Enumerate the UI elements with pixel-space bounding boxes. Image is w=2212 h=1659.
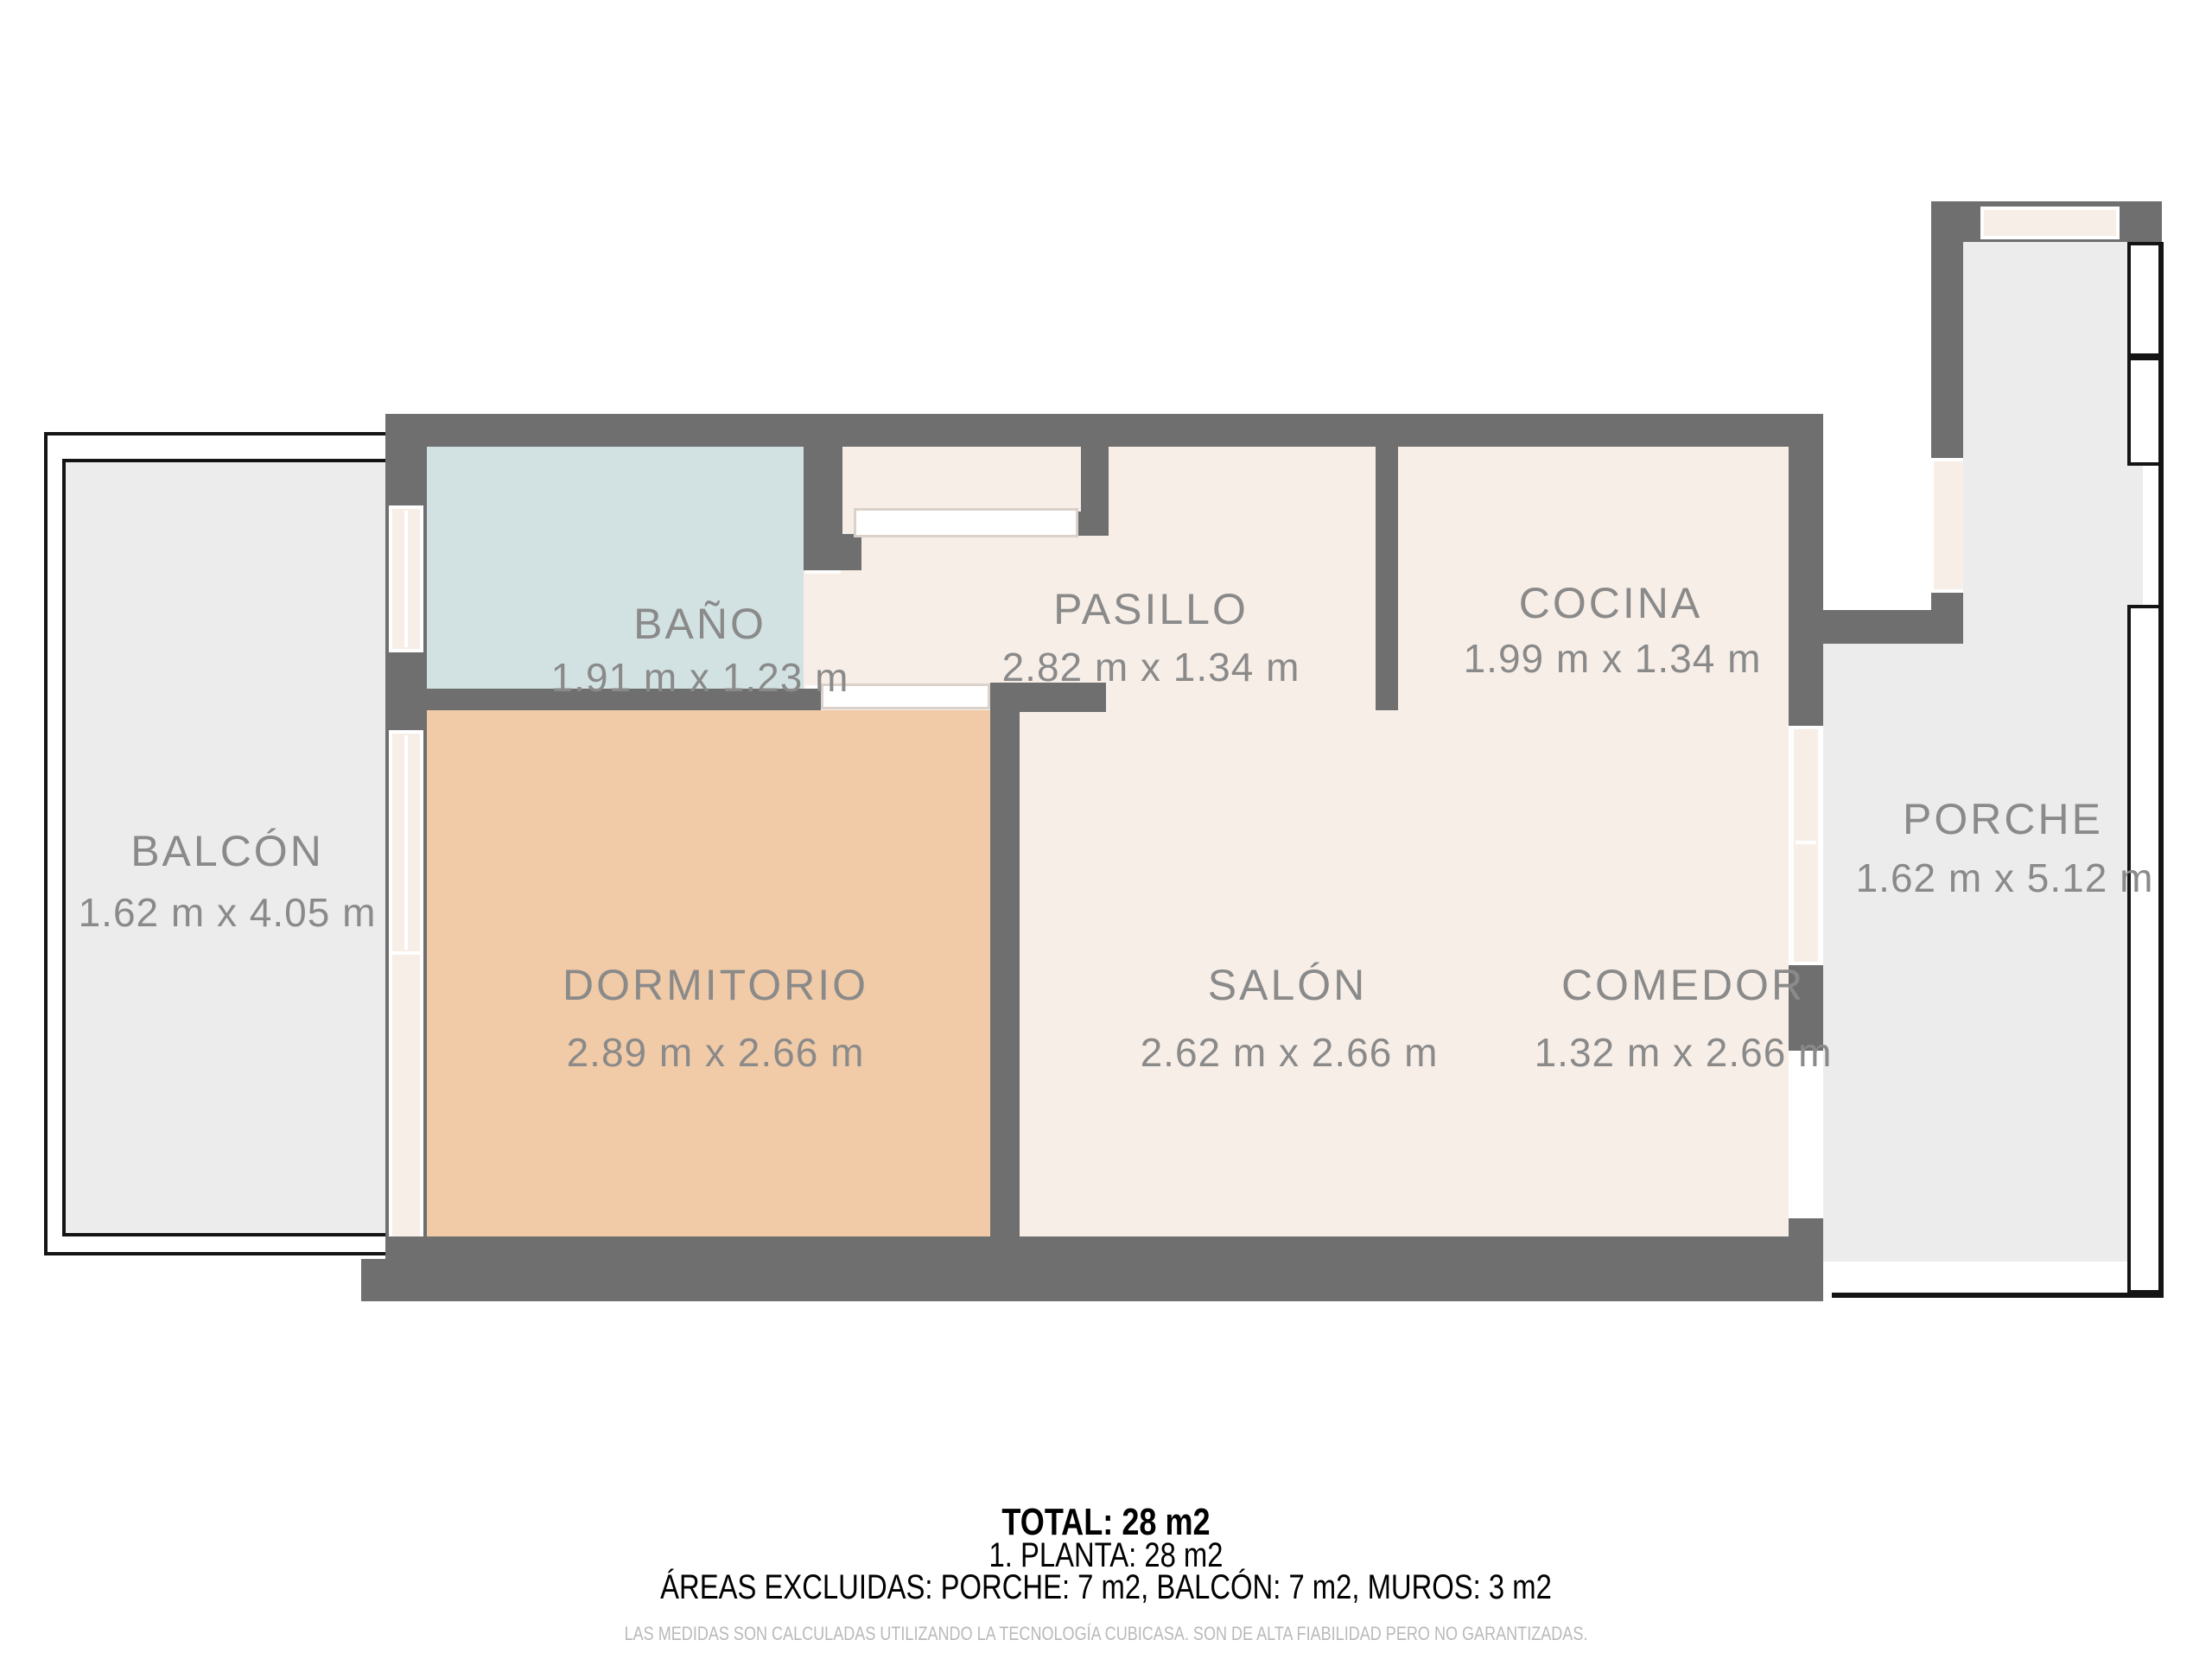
- dims-pasillo: 2.82 m x 1.34 m: [1002, 644, 1300, 690]
- bedroom-livingroom-wall: [990, 683, 1020, 1236]
- porch-left-wall: [1931, 205, 1963, 458]
- right-wall-bottom: [1789, 1218, 1823, 1301]
- bedroom-balcony-door-opening: [389, 955, 423, 1236]
- label-salon: SALÓN: [1208, 960, 1368, 1010]
- label-bano: BAÑO: [633, 599, 766, 649]
- window-divider: [1796, 841, 1816, 844]
- summary-disclaimer: LAS MEDIDAS SON CALCULADAS UTILIZANDO LA…: [199, 1623, 2012, 1645]
- dims-salon: 2.62 m x 2.66 m: [1141, 1029, 1439, 1076]
- dims-bano: 1.91 m x 1.23 m: [551, 654, 849, 701]
- dims-balcon: 1.62 m x 4.05 m: [79, 889, 377, 936]
- label-cocina: COCINA: [1519, 578, 1702, 628]
- bathroom-door-jamb: [842, 534, 861, 570]
- window-mullion: [404, 511, 408, 647]
- bathroom-balcony-window: [389, 505, 423, 652]
- label-comedor: COMEDOR: [1561, 960, 1805, 1010]
- top-wall: [385, 414, 1823, 447]
- label-dormitorio: DORMITORIO: [563, 960, 868, 1010]
- dims-cocina: 1.99 m x 1.34 m: [1464, 635, 1762, 682]
- porch-floor-upper: [1963, 242, 2143, 644]
- porch-top-window: [1980, 207, 2120, 239]
- diningroom-porch-window: [1790, 726, 1821, 965]
- diningroom-porch-door-opening: [1790, 1051, 1821, 1218]
- dims-porche: 1.62 m x 5.12 m: [1856, 855, 2154, 901]
- summary-excluded-areas: ÁREAS EXCLUIDAS: PORCHE: 7 m2, BALCÓN: 7…: [199, 1572, 2012, 1604]
- porch-window-2: [2127, 357, 2162, 466]
- entry-closet-sliding-door: [854, 508, 1078, 537]
- area-summary: TOTAL: 28 m2 1. PLANTA: 28 m2 ÁREAS EXCL…: [0, 1505, 2212, 1645]
- right-wall-top: [1789, 414, 1823, 726]
- bathroom-floor: [427, 447, 804, 689]
- label-pasillo: PASILLO: [1053, 584, 1249, 634]
- bedroom-balcony-window: [389, 730, 423, 955]
- window-mullion: [404, 735, 408, 950]
- porch-window-3: [2127, 605, 2162, 1294]
- summary-floor: 1. PLANTA: 28 m2: [199, 1540, 2012, 1572]
- porch-connector-wall: [1823, 610, 1963, 644]
- porch-left-window: [1934, 458, 1963, 593]
- label-porche: PORCHE: [1903, 794, 2103, 844]
- entry-closet-wall: [1081, 443, 1109, 536]
- porch-window-1: [2127, 242, 2162, 357]
- bottom-wall: [385, 1236, 1823, 1301]
- kitchen-hallway-wall: [1376, 443, 1398, 710]
- dims-comedor: 1.32 m x 2.66 m: [1535, 1029, 1833, 1076]
- porch-floor-lower: [1823, 644, 2143, 1262]
- porch-bottom-outline: [1832, 1293, 2164, 1298]
- bathroom-right-wall: [804, 443, 842, 570]
- summary-total: TOTAL: 28 m2: [199, 1505, 2012, 1540]
- floor-plan: BAÑO 1.91 m x 1.23 m PASILLO 2.82 m x 1.…: [0, 0, 2212, 1659]
- dims-dormitorio: 2.89 m x 2.66 m: [567, 1029, 865, 1076]
- bottom-wall-stub: [361, 1259, 385, 1301]
- label-balcon: BALCÓN: [130, 826, 324, 876]
